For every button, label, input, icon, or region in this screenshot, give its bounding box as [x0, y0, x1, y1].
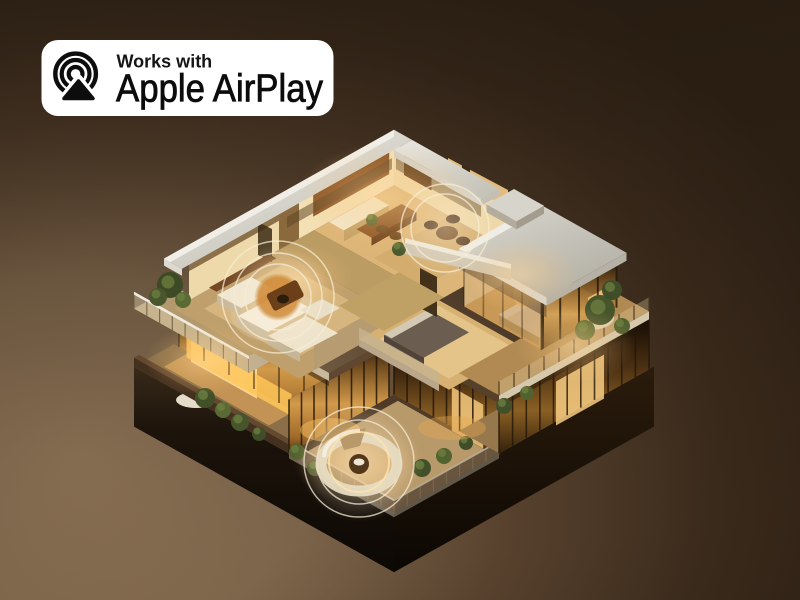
- svg-text:Apple AirPlay: Apple AirPlay: [116, 68, 323, 111]
